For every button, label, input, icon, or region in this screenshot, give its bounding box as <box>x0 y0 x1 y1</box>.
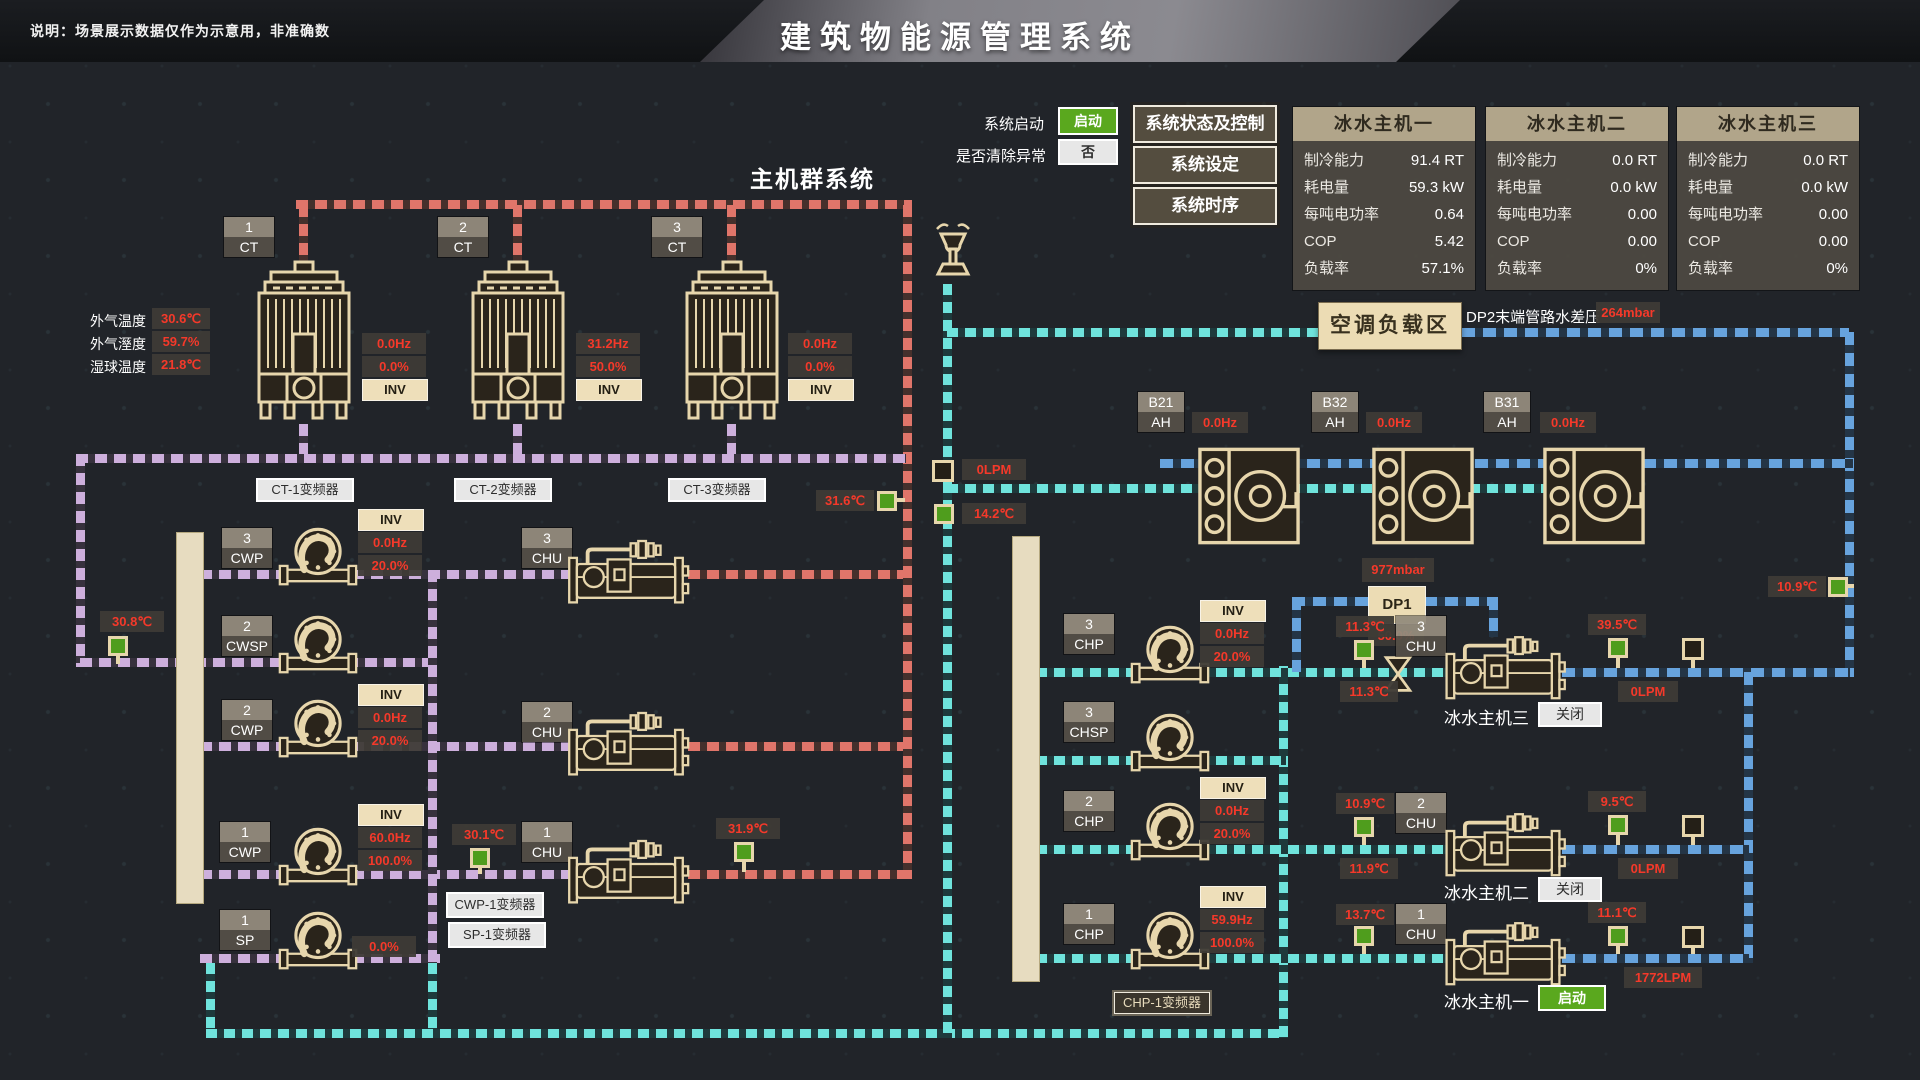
sensor-stem <box>742 862 746 872</box>
sp1-vfd-button[interactable]: SP-1变频器 <box>448 922 546 948</box>
temp-sensor-icon <box>734 842 754 862</box>
pipe <box>1845 332 1854 677</box>
stat-value: 0% <box>1635 255 1657 282</box>
sensor-stem <box>116 656 120 664</box>
temp-sensor-icon <box>877 491 897 511</box>
pipe-dp1-loop <box>1292 597 1370 606</box>
chiller-3-icon <box>564 541 688 607</box>
chw-right-temp: 10.9℃ <box>1768 576 1826 597</box>
chiller-3-stat-panel: 冰水主机三 制冷能力0.0 RT 耗电量0.0 kW 每吨电功率0.00 COP… <box>1677 107 1859 290</box>
page-title: 建筑物能源管理系统 <box>0 12 1920 57</box>
chiller1-out-temp: 11.1℃ <box>1588 902 1646 923</box>
pipe <box>299 205 308 262</box>
stat-label: 每吨电功率 <box>1497 201 1572 228</box>
ahu-b21-label: B21AH <box>1138 392 1184 432</box>
ahu-b31-icon <box>1543 447 1645 545</box>
sensor-stem <box>1362 946 1366 954</box>
pump-chp1-inv-button[interactable]: INV <box>1200 886 1266 908</box>
cwp1-vfd-button[interactable]: CWP-1变频器 <box>446 892 544 918</box>
chiller1-chu-label: 1CHU <box>1396 904 1446 944</box>
chiller-1-stat-panel: 冰水主机一 制冷能力91.4 RT 耗电量59.3 kW 每吨电功率0.64 C… <box>1293 107 1475 290</box>
pump-cwp2-hz: 0.0Hz <box>358 707 422 728</box>
stat-label: COP <box>1688 228 1721 255</box>
pump-sp1-pct: 0.0% <box>352 936 416 957</box>
chiller-1-icon <box>564 841 688 907</box>
pump-chp1-label: 1CHP <box>1064 904 1114 944</box>
chiller-unit1-icon <box>1442 923 1564 989</box>
pipe <box>688 570 903 579</box>
stat-label: 每吨电功率 <box>1304 201 1379 228</box>
sensor-stem <box>1362 837 1366 845</box>
tower-1-pct: 0.0% <box>362 356 426 377</box>
tower-2-pct: 50.0% <box>576 356 640 377</box>
pipe <box>1489 597 1498 637</box>
weather-label: 湿球温度 <box>66 357 146 377</box>
stat-value: 91.4 RT <box>1411 147 1464 174</box>
stat-label: COP <box>1497 228 1530 255</box>
tower-3-hz: 0.0Hz <box>788 333 852 354</box>
stat-label: 负载率 <box>1497 255 1542 282</box>
sensor-stem <box>897 498 905 502</box>
stat-value: 0.64 <box>1435 201 1464 228</box>
stat-value: 0.00 <box>1628 228 1657 255</box>
chiller-unit3-icon <box>1442 637 1564 703</box>
pump-chp3-label: 3CHP <box>1064 614 1114 654</box>
ahu-b31-label: B31AH <box>1484 392 1530 432</box>
chu1-cond-out-temp: 31.9℃ <box>716 818 780 839</box>
stat-value: 0.00 <box>1628 201 1657 228</box>
tower-1-inv-button[interactable]: INV <box>362 379 428 401</box>
pump-cwp1-inv-button[interactable]: INV <box>358 804 424 826</box>
pump-chp2-label: 2CHP <box>1064 791 1114 831</box>
sensor-stem <box>1616 658 1620 668</box>
pipe <box>428 570 437 963</box>
stat-value: 0.00 <box>1819 201 1848 228</box>
pipe <box>1562 954 1749 963</box>
dp2-label: DP2末端管路水差压 <box>1466 306 1606 327</box>
system-start-button[interactable]: 启动 <box>1058 107 1118 135</box>
system-status-button[interactable]: 系统状态及控制 <box>1133 105 1277 143</box>
pipe <box>1744 672 1753 963</box>
flow-sensor-icon <box>932 460 954 482</box>
stat-label: COP <box>1304 228 1337 255</box>
panel-title: 冰水主机二 <box>1486 107 1668 141</box>
chiller3-flow: 0LPM <box>1618 681 1678 702</box>
pump-cwp2-pct: 20.0% <box>358 730 422 751</box>
scada-canvas: 说明：场景展示数据仅作为示意用，非准确数 建筑物能源管理系统 系统启动 启动 是… <box>0 0 1920 1080</box>
chiller-unit2-icon <box>1442 814 1564 880</box>
pipe <box>513 205 522 262</box>
tower-1-label: 1CT <box>224 217 274 257</box>
temp-sensor-icon <box>1354 817 1374 837</box>
sensor-stem <box>1616 946 1620 954</box>
pipe <box>1562 668 1850 677</box>
pump-chp2-inv-button[interactable]: INV <box>1200 777 1266 799</box>
temp-sensor-icon <box>1608 815 1628 835</box>
stat-value: 0% <box>1826 255 1848 282</box>
pipe-condenser-return <box>76 454 906 463</box>
stat-label: 负载率 <box>1688 255 1733 282</box>
sensor-stem <box>1691 837 1695 845</box>
pipe <box>688 870 903 879</box>
pipe-chw-return <box>206 1029 1288 1038</box>
tower-2-vfd-button[interactable]: CT-2变频器 <box>454 478 552 502</box>
left-manifold <box>176 532 204 904</box>
pipe-condenser-supply <box>296 200 912 209</box>
stat-value: 0.0 kW <box>1801 174 1848 201</box>
pipe <box>727 205 736 262</box>
chiller3-name: 冰水主机三 <box>1444 704 1540 729</box>
pump-cwp3-icon <box>276 527 360 585</box>
stat-value: 59.3 kW <box>1409 174 1464 201</box>
pipe <box>206 963 215 1038</box>
cw-return-temp: 30.8℃ <box>100 611 164 632</box>
load-zone-title: 空调负载区 <box>1318 302 1462 350</box>
header-bar: 说明：场景展示数据仅作为示意用，非准确数 建筑物能源管理系统 <box>0 0 1920 62</box>
system-start-label: 系统启动 <box>984 113 1054 134</box>
pump-cwp3-inv-button[interactable]: INV <box>358 509 424 531</box>
stat-label: 制冷能力 <box>1688 147 1748 174</box>
temp-sensor-icon <box>108 636 128 656</box>
pipe <box>688 742 903 751</box>
pump-chp2-pct: 20.0% <box>1200 823 1264 844</box>
chiller1-in-temp: 13.7℃ <box>1336 904 1394 925</box>
pump-cwsp2-icon <box>276 615 360 673</box>
tower-2-inv-button[interactable]: INV <box>576 379 642 401</box>
pump-chp1-hz: 59.9Hz <box>1200 909 1264 930</box>
pipe <box>1292 597 1301 672</box>
tower-3-vfd-button[interactable]: CT-3变频器 <box>668 478 766 502</box>
stat-label: 制冷能力 <box>1497 147 1557 174</box>
chiller2-stop-button[interactable]: 关闭 <box>1538 877 1602 902</box>
right-manifold <box>1012 536 1040 982</box>
ahu-b21-hz: 0.0Hz <box>1192 412 1248 433</box>
pump-chsp3-icon <box>1128 713 1212 771</box>
pump-chp2-hz: 0.0Hz <box>1200 800 1264 821</box>
stat-label: 耗电量 <box>1688 174 1733 201</box>
stat-value: 5.42 <box>1435 228 1464 255</box>
tower-1-vfd-button[interactable]: CT-1变频器 <box>256 478 354 502</box>
temp-sensor-icon <box>470 848 490 868</box>
system-settings-button[interactable]: 系统设定 <box>1133 146 1277 184</box>
pump-chp3-hz: 0.0Hz <box>1200 623 1264 644</box>
clear-fault-button[interactable]: 否 <box>1058 139 1118 165</box>
tower-3-label: 3CT <box>652 217 702 257</box>
sensor-stem <box>1691 660 1695 668</box>
temp-sensor-icon <box>1354 640 1374 660</box>
pump-chp3-inv-button[interactable]: INV <box>1200 600 1266 622</box>
fountain-icon <box>930 222 976 284</box>
plant-section-title: 主机群系统 <box>750 160 910 194</box>
pipe <box>200 870 570 879</box>
chiller1-start-button[interactable]: 启动 <box>1538 985 1606 1011</box>
stat-value: 0.0 RT <box>1612 147 1657 174</box>
stat-value: 0.00 <box>1819 228 1848 255</box>
dp1-pressure-value: 977mbar <box>1362 558 1434 582</box>
pump-cwp2-icon <box>276 699 360 757</box>
ahu-b32-hz: 0.0Hz <box>1366 412 1422 433</box>
stat-label: 耗电量 <box>1497 174 1542 201</box>
pump-cwp3-label: 3CWP <box>222 528 272 568</box>
pump-cwp2-label: 2CWP <box>222 700 272 740</box>
pump-cwp3-hz: 0.0Hz <box>358 532 422 553</box>
chiller2-in-temp: 10.9℃ <box>1336 793 1394 814</box>
pump-sp1-label: 1SP <box>220 910 270 950</box>
panel-title: 冰水主机三 <box>1677 107 1859 141</box>
pump-sp1-icon <box>276 911 360 969</box>
chiller2-chu-label: 2CHU <box>1396 793 1446 833</box>
pump-cwp3-pct: 20.0% <box>358 555 422 576</box>
cooling-tower-3-icon <box>677 262 787 432</box>
weather-label: 外气温度 <box>66 311 146 331</box>
chiller3-out-temp: 39.5℃ <box>1588 614 1646 635</box>
pipe <box>1036 954 1446 963</box>
sensor-stem <box>1616 835 1620 845</box>
weather-label: 外气溼度 <box>66 334 146 354</box>
pipe <box>76 454 85 667</box>
ahu-b21-icon <box>1198 447 1300 545</box>
chp1-vfd-button[interactable]: CHP-1变频器 <box>1114 992 1210 1014</box>
outdoor-humidity-value: 59.7% <box>152 331 210 352</box>
ahu-b32-icon <box>1372 447 1474 545</box>
tower-2-hz: 31.2Hz <box>576 333 640 354</box>
chiller3-ret-temp: 11.3℃ <box>1340 681 1398 702</box>
pump-cwp2-inv-button[interactable]: INV <box>358 684 424 706</box>
pump-cwsp2-label: 2CWSP <box>222 616 272 656</box>
pump-cwp1-icon <box>276 827 360 885</box>
temp-sensor-icon <box>1828 577 1848 597</box>
stat-label: 每吨电功率 <box>1688 201 1763 228</box>
sensor-stem <box>1362 660 1366 668</box>
chiller1-name: 冰水主机一 <box>1444 988 1540 1013</box>
system-sequence-button[interactable]: 系统时序 <box>1133 187 1277 225</box>
pipe-dp1-loop <box>1424 597 1498 606</box>
chiller2-ret-temp: 11.9℃ <box>1340 858 1398 879</box>
sensor-stem <box>1691 948 1695 954</box>
pump-chp1-pct: 100.0% <box>1200 932 1264 953</box>
chiller-2-stat-panel: 冰水主机二 制冷能力0.0 RT 耗电量0.0 kW 每吨电功率0.00 COP… <box>1486 107 1668 290</box>
dp2-value: 264mbar <box>1596 302 1660 323</box>
ahu-b32-label: B32AH <box>1312 392 1358 432</box>
temp-sensor-icon <box>1608 926 1628 946</box>
chiller3-stop-button[interactable]: 关闭 <box>1538 702 1602 727</box>
sensor-stem <box>1848 584 1854 588</box>
temp-sensor-icon <box>1354 926 1374 946</box>
chiller2-name: 冰水主机二 <box>1444 879 1540 904</box>
bypass-flow-value: 0LPM <box>962 459 1026 480</box>
sensor-stem <box>478 868 482 874</box>
stat-value: 0.0 RT <box>1803 147 1848 174</box>
cond-riser-temp: 31.6℃ <box>816 490 874 511</box>
pump-cwp1-pct: 100.0% <box>358 850 422 871</box>
chiller3-chu-label: 3CHU <box>1396 616 1446 656</box>
tower-3-pct: 0.0% <box>788 356 852 377</box>
pipe <box>947 328 1322 337</box>
pump-chp3-pct: 20.0% <box>1200 646 1264 667</box>
tower-1-hz: 0.0Hz <box>362 333 426 354</box>
pipe-dp2-line <box>1462 328 1849 337</box>
chiller2-flow: 0LPM <box>1618 858 1678 879</box>
outdoor-temp-value: 30.6℃ <box>152 308 210 329</box>
chiller2-out-temp: 9.5℃ <box>1588 791 1646 812</box>
pipe-chw-bypass <box>943 284 952 1038</box>
pump-chsp3-label: 3CHSP <box>1064 702 1114 742</box>
sensor-icon <box>1682 926 1704 948</box>
tower-2-label: 2CT <box>438 217 488 257</box>
stat-value: 0.0 kW <box>1610 174 1657 201</box>
stat-label: 制冷能力 <box>1304 147 1364 174</box>
pipe <box>80 658 432 667</box>
stat-value: 57.1% <box>1421 255 1464 282</box>
wetbulb-temp-value: 21.8℃ <box>152 354 210 375</box>
ahu-b31-hz: 0.0Hz <box>1540 412 1596 433</box>
sensor-icon <box>1682 638 1704 660</box>
cooling-tower-1-icon <box>249 262 359 432</box>
pipe <box>428 963 437 1038</box>
chiller-2-icon <box>564 713 688 779</box>
clear-fault-label: 是否清除异常 <box>956 145 1054 166</box>
tower-3-inv-button[interactable]: INV <box>788 379 854 401</box>
pipe <box>1562 845 1749 854</box>
sensor-icon <box>1682 815 1704 837</box>
cooling-tower-2-icon <box>463 262 573 432</box>
stat-label: 耗电量 <box>1304 174 1349 201</box>
pipe-condenser-riser <box>903 205 912 879</box>
temp-sensor-icon <box>934 504 954 524</box>
bypass-temp-value: 14.2℃ <box>962 503 1026 524</box>
pipe <box>1036 845 1446 854</box>
stat-label: 负载率 <box>1304 255 1349 282</box>
cw-supply-temp: 30.1℃ <box>452 824 516 845</box>
panel-title: 冰水主机一 <box>1293 107 1475 141</box>
temp-sensor-icon <box>1608 638 1628 658</box>
pump-cwp1-label: 1CWP <box>220 822 270 862</box>
pump-cwp1-hz: 60.0Hz <box>358 827 422 848</box>
chiller3-in-temp: 11.3℃ <box>1336 616 1394 637</box>
chiller1-flow: 1772LPM <box>1624 967 1702 988</box>
